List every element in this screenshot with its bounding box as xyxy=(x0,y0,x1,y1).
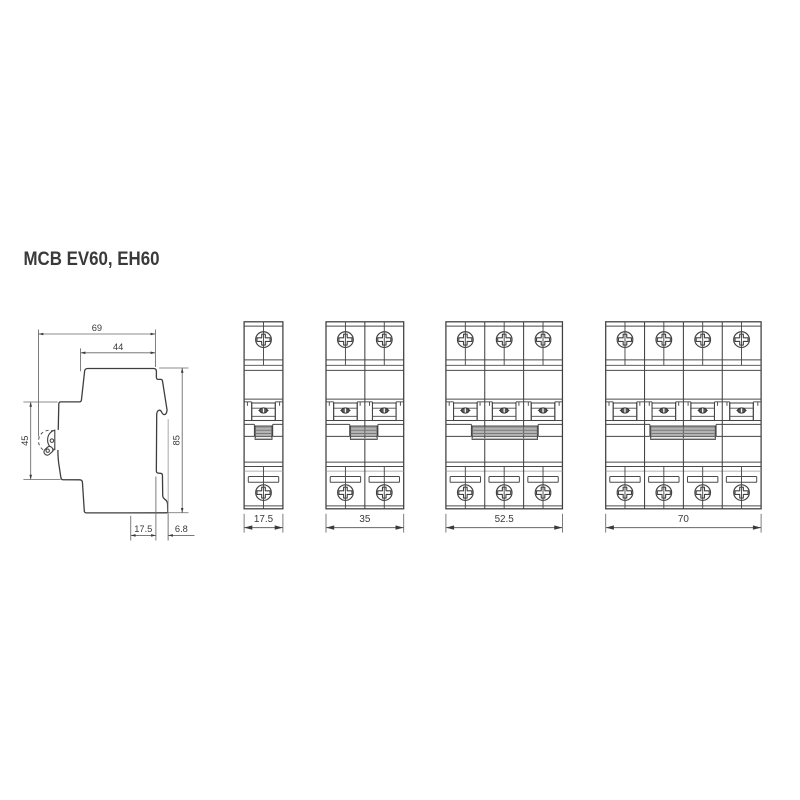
svg-text:17.5: 17.5 xyxy=(134,524,152,534)
svg-text:85: 85 xyxy=(172,435,182,445)
svg-text:17.5: 17.5 xyxy=(254,514,274,525)
svg-text:35: 35 xyxy=(359,514,370,525)
svg-text:6.8: 6.8 xyxy=(175,524,188,534)
svg-text:MCB EV60, EH60: MCB EV60, EH60 xyxy=(24,249,160,270)
svg-text:69: 69 xyxy=(92,323,102,333)
svg-text:44: 44 xyxy=(113,342,123,352)
svg-text:70: 70 xyxy=(678,514,689,525)
svg-text:52.5: 52.5 xyxy=(495,514,515,525)
svg-text:45: 45 xyxy=(20,436,30,446)
